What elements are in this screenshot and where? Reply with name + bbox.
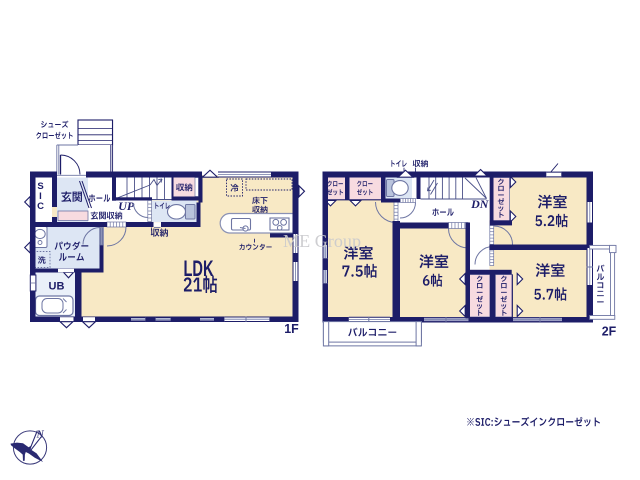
svg-text:ME Group: ME Group: [283, 231, 361, 251]
svg-text:LDK: LDK: [184, 256, 214, 281]
svg-text:UB: UB: [49, 281, 65, 293]
svg-text:C: C: [37, 201, 44, 212]
svg-text:N: N: [36, 429, 45, 440]
svg-text:1F: 1F: [284, 322, 299, 336]
svg-text:DN: DN: [470, 197, 490, 211]
svg-text:2F: 2F: [602, 325, 617, 339]
svg-text:UP: UP: [118, 199, 135, 213]
